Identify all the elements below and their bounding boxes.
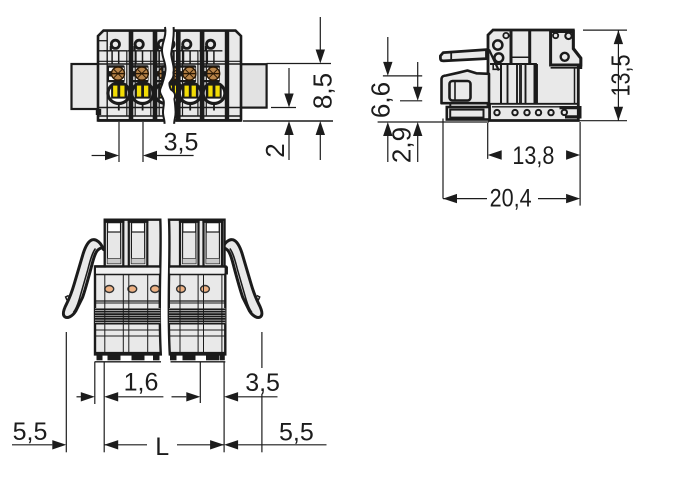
svg-text:2,9: 2,9 [387, 127, 417, 163]
svg-text:L: L [155, 433, 169, 461]
svg-text:2: 2 [260, 143, 290, 157]
svg-text:3,5: 3,5 [164, 129, 199, 157]
svg-text:5,5: 5,5 [279, 419, 314, 447]
svg-text:8,5: 8,5 [308, 73, 338, 109]
svg-text:1,6: 1,6 [124, 369, 159, 397]
svg-text:6,6: 6,6 [366, 82, 396, 118]
svg-text:13,8: 13,8 [512, 142, 554, 170]
svg-text:3,5: 3,5 [245, 369, 280, 397]
svg-text:5,5: 5,5 [13, 418, 48, 446]
svg-text:13,5: 13,5 [606, 55, 636, 97]
svg-text:20,4: 20,4 [490, 185, 532, 213]
